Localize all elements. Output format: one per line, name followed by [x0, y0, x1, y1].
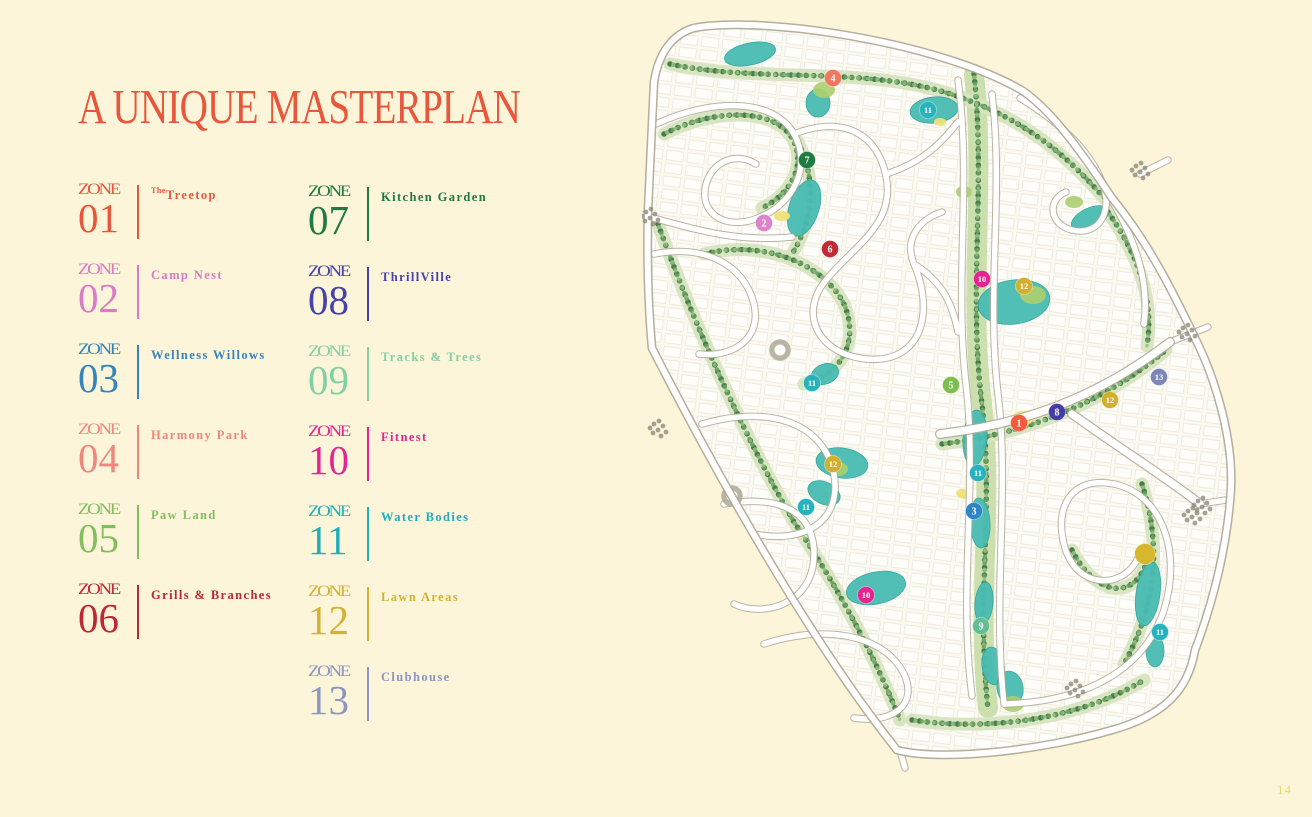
zone-label: Clubhouse — [381, 665, 451, 685]
svg-text:1: 1 — [1017, 418, 1022, 429]
map-marker: 13 — [1151, 369, 1168, 386]
masterplan-svg: 4117261012131151281121111310911 — [642, 2, 1242, 774]
zone-number-block: ZONE 13 — [308, 665, 363, 718]
zone-number: 05 — [78, 520, 133, 556]
map-marker: 1 — [1011, 415, 1028, 432]
svg-text:10: 10 — [978, 274, 987, 284]
zone-legend-item: ZONE 04 Harmony Park — [78, 423, 313, 503]
map-marker: 11 — [804, 375, 821, 392]
zone-number: 04 — [78, 440, 133, 476]
svg-text:12: 12 — [1106, 395, 1115, 405]
zone-number: 07 — [308, 202, 363, 238]
zone-label-text: Treetop — [166, 188, 217, 202]
zone-legend-item: ZONE 12 Lawn Areas — [308, 585, 543, 665]
svg-text:10: 10 — [862, 590, 871, 600]
svg-text:12: 12 — [829, 459, 838, 469]
map-marker: 11 — [798, 499, 815, 516]
zone-number-block: ZONE 10 — [308, 425, 363, 478]
zone-number-block: ZONE 03 — [78, 343, 133, 396]
zone-number-block: ZONE 06 — [78, 583, 133, 636]
zone-legend-item: ZONE 07 Kitchen Garden — [308, 185, 543, 265]
zone-label: Lawn Areas — [381, 585, 459, 605]
zone-legend-item: ZONE 09 Tracks & Trees — [308, 345, 543, 425]
map-marker: 12 — [1102, 392, 1119, 409]
zone-number: 09 — [308, 362, 363, 398]
zone-word: ZONE — [308, 185, 373, 199]
map-marker — [1135, 544, 1156, 565]
svg-text:11: 11 — [802, 502, 810, 512]
map-marker: 9 — [973, 618, 990, 635]
map-marker: 11 — [970, 465, 987, 482]
zone-number: 03 — [78, 360, 133, 396]
zone-label-text: Paw Land — [151, 508, 217, 522]
zone-number: 06 — [78, 600, 133, 636]
zone-legend-column-1: ZONE 01 TheTreetop ZONE 02 Camp Nest ZON… — [78, 183, 313, 663]
svg-text:6: 6 — [828, 244, 833, 255]
zone-label: Harmony Park — [151, 423, 249, 443]
zone-label: Fitnest — [381, 425, 428, 445]
zone-label: TheTreetop — [151, 183, 217, 203]
zone-label: Wellness Willows — [151, 343, 266, 363]
map-marker: 12 — [1016, 278, 1033, 295]
svg-text:13: 13 — [1155, 372, 1164, 382]
map-marker: 3 — [966, 503, 983, 520]
map-marker: 8 — [1049, 404, 1066, 421]
zone-legend-item: ZONE 03 Wellness Willows — [78, 343, 313, 423]
zone-number: 08 — [308, 282, 363, 318]
zone-word: ZONE — [78, 503, 143, 517]
zone-word: ZONE — [78, 183, 143, 197]
zone-word: ZONE — [308, 505, 373, 519]
zone-legend-item: ZONE 02 Camp Nest — [78, 263, 313, 343]
zone-label: Water Bodies — [381, 505, 469, 525]
zone-number-block: ZONE 02 — [78, 263, 133, 316]
map-marker: 2 — [756, 215, 773, 232]
svg-text:11: 11 — [924, 105, 932, 115]
zone-number: 11 — [308, 522, 363, 558]
zone-label: Grills & Branches — [151, 583, 272, 603]
zone-label: ThrillVille — [381, 265, 452, 285]
zone-label-text: Kitchen Garden — [381, 190, 487, 204]
map-marker: 11 — [1152, 624, 1169, 641]
zone-word: ZONE — [78, 583, 143, 597]
svg-text:3: 3 — [972, 506, 977, 517]
map-marker: 10 — [858, 587, 875, 604]
zone-number-block: ZONE 01 — [78, 183, 133, 236]
map-marker: 4 — [825, 70, 842, 87]
svg-text:11: 11 — [1156, 627, 1164, 637]
map-marker: 12 — [825, 456, 842, 473]
zone-label: Camp Nest — [151, 263, 223, 283]
zone-number-block: ZONE 07 — [308, 185, 363, 238]
svg-text:8: 8 — [1055, 407, 1060, 418]
zone-label-text: Tracks & Trees — [381, 350, 482, 364]
map-marker: 6 — [822, 241, 839, 258]
map-marker: 7 — [799, 152, 816, 169]
zone-number: 02 — [78, 280, 133, 316]
zone-label-text: Wellness Willows — [151, 348, 266, 362]
zone-label-text: Clubhouse — [381, 670, 451, 684]
zone-label: Tracks & Trees — [381, 345, 482, 365]
zone-word: ZONE — [78, 263, 143, 277]
zone-legend-item: ZONE 13 Clubhouse — [308, 665, 543, 745]
zone-legend-item: ZONE 11 Water Bodies — [308, 505, 543, 585]
zone-label-text: Lawn Areas — [381, 590, 459, 604]
zone-label-text: Harmony Park — [151, 428, 249, 442]
map-marker: 11 — [920, 102, 937, 119]
zone-label-prefix: The — [151, 186, 166, 195]
zone-number: 12 — [308, 602, 363, 638]
svg-text:12: 12 — [1020, 281, 1029, 291]
zone-number-block: ZONE 08 — [308, 265, 363, 318]
zone-legend-item: ZONE 08 ThrillVille — [308, 265, 543, 345]
zone-number-block: ZONE 05 — [78, 503, 133, 556]
svg-text:5: 5 — [949, 380, 954, 391]
masterplan-page: A UNIQUE MASTERPLAN ZONE 01 TheTreetop Z… — [0, 0, 1312, 817]
page-title: A UNIQUE MASTERPLAN — [78, 78, 520, 135]
map-marker: 10 — [974, 271, 991, 288]
svg-text:11: 11 — [808, 378, 816, 388]
zone-label-text: ThrillVille — [381, 270, 452, 284]
zone-word: ZONE — [308, 265, 373, 279]
svg-text:9: 9 — [979, 621, 984, 632]
zone-word: ZONE — [308, 425, 373, 439]
zone-number: 13 — [308, 682, 363, 718]
zone-word: ZONE — [308, 345, 373, 359]
zone-number: 01 — [78, 200, 133, 236]
svg-text:2: 2 — [762, 218, 767, 229]
zone-legend-item: ZONE 06 Grills & Branches — [78, 583, 313, 663]
zone-number: 10 — [308, 442, 363, 478]
zone-label-text: Camp Nest — [151, 268, 223, 282]
svg-text:11: 11 — [974, 468, 982, 478]
svg-text:4: 4 — [831, 73, 836, 84]
zone-legend-item: ZONE 10 Fitnest — [308, 425, 543, 505]
zone-word: ZONE — [78, 423, 143, 437]
zone-label: Kitchen Garden — [381, 185, 487, 205]
zone-word: ZONE — [78, 343, 143, 357]
zone-label: Paw Land — [151, 503, 217, 523]
zone-legend-item: ZONE 01 TheTreetop — [78, 183, 313, 263]
zone-word: ZONE — [308, 585, 373, 599]
zone-label-text: Fitnest — [381, 430, 428, 444]
zone-number-block: ZONE 11 — [308, 505, 363, 558]
masterplan-map: 4117261012131151281121111310911 — [642, 2, 1242, 774]
zone-legend-column-2: ZONE 07 Kitchen Garden ZONE 08 ThrillVil… — [308, 185, 543, 745]
zone-word: ZONE — [308, 665, 373, 679]
zone-label-text: Grills & Branches — [151, 588, 272, 602]
svg-text:7: 7 — [805, 155, 810, 166]
map-marker: 5 — [943, 377, 960, 394]
zone-legend-item: ZONE 05 Paw Land — [78, 503, 313, 583]
zone-number-block: ZONE 12 — [308, 585, 363, 638]
zone-number-block: ZONE 09 — [308, 345, 363, 398]
page-number: 14 — [1277, 782, 1292, 798]
zone-label-text: Water Bodies — [381, 510, 469, 524]
zone-number-block: ZONE 04 — [78, 423, 133, 476]
